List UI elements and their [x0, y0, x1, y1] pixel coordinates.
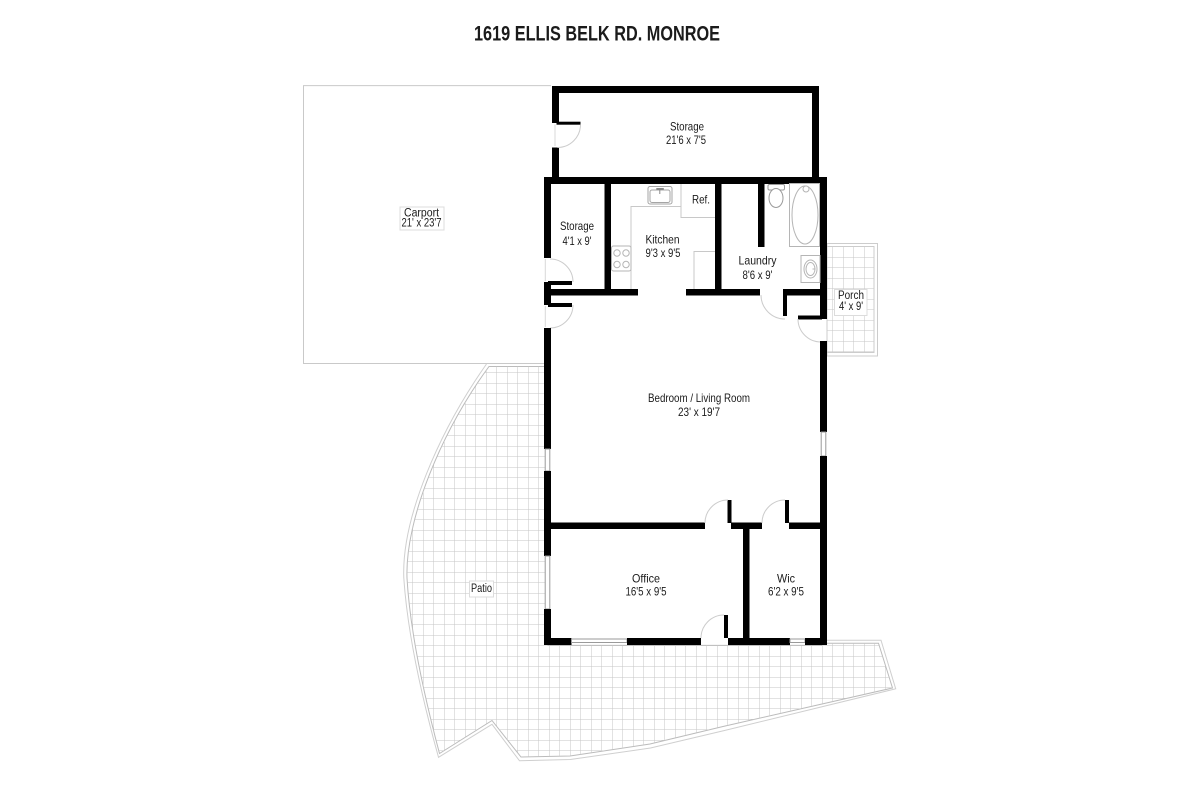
- svg-text:21' x 23'7: 21' x 23'7: [402, 218, 442, 230]
- svg-text:23' x 19'7: 23' x 19'7: [678, 405, 720, 419]
- svg-text:8'6 x 9': 8'6 x 9': [743, 268, 773, 282]
- svg-text:1619 ELLIS BELK RD. MONROE: 1619 ELLIS BELK RD. MONROE: [474, 23, 720, 46]
- svg-text:Kitchen: Kitchen: [646, 233, 680, 247]
- svg-text:Office: Office: [632, 572, 660, 586]
- svg-text:Bedroom / Living Room: Bedroom / Living Room: [648, 391, 750, 405]
- svg-text:Patio: Patio: [471, 583, 492, 595]
- svg-text:Storage: Storage: [670, 120, 704, 134]
- svg-text:16'5 x 9'5: 16'5 x 9'5: [626, 585, 667, 599]
- svg-text:Storage: Storage: [560, 219, 594, 233]
- svg-text:Wic: Wic: [777, 572, 795, 586]
- svg-text:Laundry: Laundry: [739, 254, 777, 268]
- svg-text:4' x 9': 4' x 9': [839, 301, 863, 313]
- svg-text:9'3 x 9'5: 9'3 x 9'5: [646, 246, 681, 260]
- svg-text:4'1 x 9': 4'1 x 9': [563, 234, 592, 248]
- svg-text:21'6 x 7'5: 21'6 x 7'5: [666, 133, 706, 147]
- svg-text:Ref.: Ref.: [692, 193, 710, 207]
- svg-text:6'2 x 9'5: 6'2 x 9'5: [768, 585, 804, 599]
